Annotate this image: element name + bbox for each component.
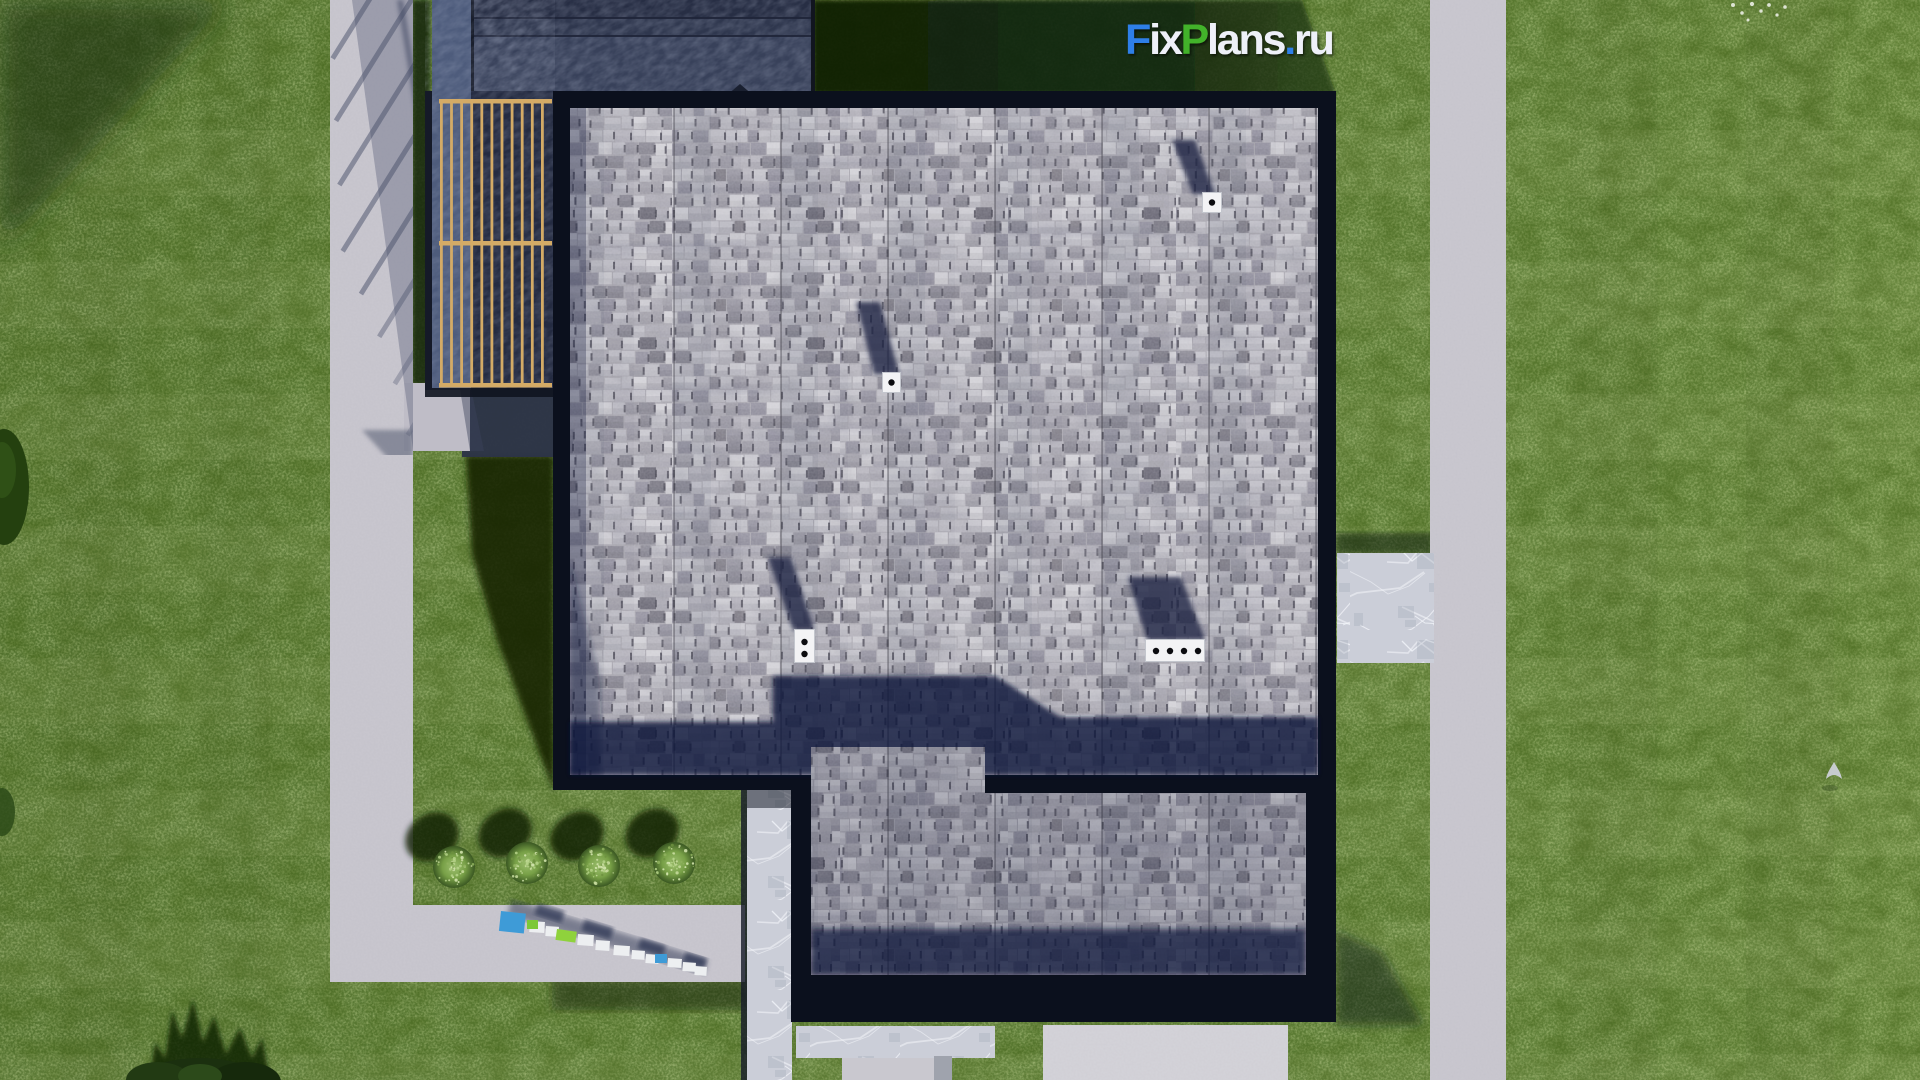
svg-text:FixPlans.ru: FixPlans.ru: [1125, 16, 1333, 64]
